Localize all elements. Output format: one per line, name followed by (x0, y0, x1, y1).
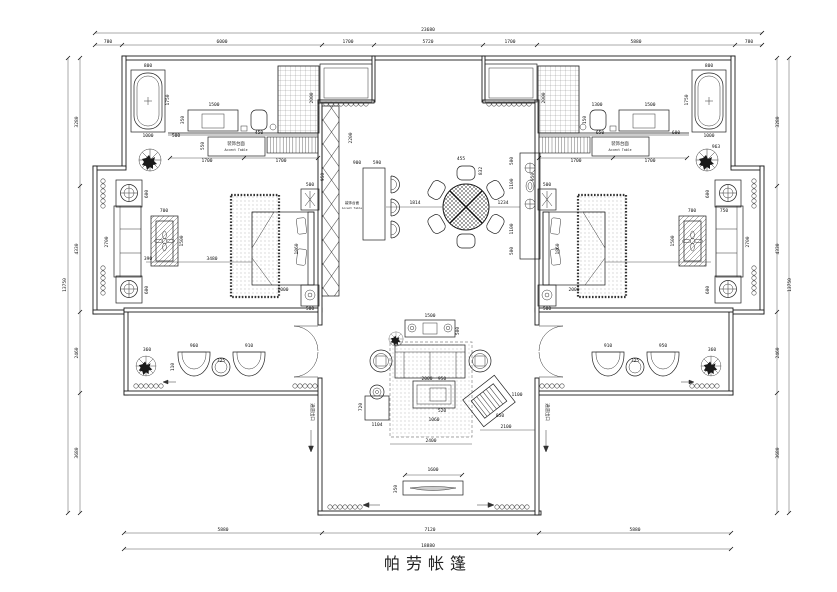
entry-windows (320, 64, 537, 102)
passage-arrow-right (544, 430, 549, 452)
bath-right (592, 352, 679, 376)
svg-text:520: 520 (438, 408, 447, 414)
bar-counter (363, 168, 400, 240)
svg-text:2000: 2000 (421, 376, 432, 382)
svg-text:1700: 1700 (342, 39, 353, 45)
svg-text:832: 832 (478, 167, 484, 176)
svg-text:750: 750 (720, 208, 729, 214)
svg-text:950: 950 (438, 376, 447, 382)
svg-text:1060: 1060 (428, 417, 439, 423)
svg-text:3280: 3280 (74, 116, 80, 127)
plant-top-left (139, 149, 161, 171)
svg-text:1500: 1500 (179, 235, 185, 246)
svg-text:23680: 23680 (421, 27, 435, 33)
accent-table-right (539, 137, 649, 156)
svg-text:2000: 2000 (568, 287, 579, 293)
svg-text:3480: 3480 (206, 256, 217, 262)
svg-text:1700: 1700 (504, 39, 515, 45)
svg-text:600: 600 (705, 286, 711, 295)
svg-text:550: 550 (200, 142, 206, 151)
svg-text:装饰台面: 装饰台面 (227, 140, 245, 147)
svg-text:1104: 1104 (371, 422, 382, 428)
svg-text:963: 963 (712, 144, 721, 150)
svg-text:850: 850 (496, 413, 505, 419)
svg-text:1500: 1500 (424, 313, 435, 319)
living-hall (365, 320, 515, 495)
svg-text:装饰台面: 装饰台面 (345, 200, 360, 205)
svg-text:650: 650 (596, 130, 605, 136)
svg-text:800: 800 (705, 63, 714, 69)
svg-text:1500: 1500 (670, 235, 676, 246)
door-right (539, 326, 563, 377)
svg-text:1000: 1000 (142, 133, 153, 139)
svg-text:150: 150 (582, 116, 588, 125)
svg-text:500: 500 (306, 182, 315, 188)
svg-text:1750: 1750 (684, 94, 690, 105)
svg-text:950: 950 (320, 173, 326, 182)
bed-right (538, 189, 626, 306)
svg-text:700: 700 (160, 208, 169, 214)
svg-text:500: 500 (543, 182, 552, 188)
floor-plan-canvas: 2368078060001700572017005880780588071205… (0, 0, 837, 592)
svg-text:1500: 1500 (208, 102, 219, 108)
svg-text:360: 360 (708, 347, 717, 353)
svg-text:1750: 1750 (165, 94, 171, 105)
svg-text:1814: 1814 (409, 200, 420, 206)
svg-text:390: 390 (144, 256, 153, 262)
svg-text:780: 780 (104, 39, 113, 45)
svg-text:500: 500 (306, 306, 315, 312)
plant-hall (389, 332, 403, 346)
svg-text:2000: 2000 (309, 92, 315, 103)
svg-text:700: 700 (688, 208, 697, 214)
accent-table-left (208, 137, 318, 156)
curtain-scallops (101, 102, 756, 509)
svg-text:通道出口: 通道出口 (309, 403, 316, 421)
svg-text:2200: 2200 (348, 132, 354, 143)
bathtub-left (131, 70, 165, 132)
svg-text:780: 780 (745, 39, 754, 45)
svg-text:325: 325 (217, 358, 226, 364)
svg-text:1600: 1600 (427, 467, 438, 473)
svg-text:350: 350 (180, 116, 186, 125)
svg-text:325: 325 (631, 358, 640, 364)
svg-text:2000: 2000 (277, 287, 288, 293)
svg-text:950: 950 (659, 343, 668, 349)
svg-text:900: 900 (353, 160, 362, 166)
svg-text:950: 950 (530, 173, 536, 182)
svg-text:1700: 1700 (570, 158, 581, 164)
bath-left (178, 352, 265, 376)
svg-text:960: 960 (190, 343, 199, 349)
svg-text:1700: 1700 (201, 158, 212, 164)
svg-text:18880: 18880 (421, 543, 435, 549)
svg-text:600: 600 (705, 190, 711, 199)
svg-text:3280: 3280 (775, 116, 781, 127)
plant-bath-left (136, 356, 156, 376)
svg-text:3680: 3680 (74, 447, 80, 458)
svg-text:1860: 1860 (555, 243, 561, 254)
svg-text:13750: 13750 (62, 278, 68, 292)
svg-text:6000: 6000 (216, 39, 227, 45)
dimension-ticks (66, 31, 791, 551)
svg-text:Accent Table: Accent Table (224, 148, 247, 152)
svg-text:450: 450 (255, 130, 264, 136)
svg-text:7120: 7120 (424, 527, 435, 533)
svg-text:4330: 4330 (74, 243, 80, 254)
svg-text:1700: 1700 (644, 158, 655, 164)
svg-text:1100: 1100 (509, 178, 515, 189)
svg-text:通道出口: 通道出口 (544, 403, 551, 421)
svg-text:600: 600 (672, 130, 681, 136)
svg-text:装饰台面: 装饰台面 (611, 140, 629, 147)
svg-text:4330: 4330 (775, 243, 781, 254)
bed-left (231, 189, 319, 306)
svg-text:500: 500 (172, 133, 181, 139)
svg-text:910: 910 (245, 343, 254, 349)
svg-text:13750: 13750 (787, 278, 793, 292)
svg-text:800: 800 (144, 63, 153, 69)
wing-right (679, 180, 743, 303)
svg-text:1300: 1300 (591, 102, 602, 108)
floor-plan-page: 2368078060001700572017005880780588071205… (0, 0, 837, 592)
svg-text:500: 500 (509, 247, 515, 256)
svg-text:2460: 2460 (74, 347, 80, 358)
svg-text:5720: 5720 (422, 39, 433, 45)
svg-text:1000: 1000 (703, 133, 714, 139)
walls (93, 56, 764, 515)
door-left (294, 326, 318, 377)
svg-text:Accent Table: Accent Table (342, 206, 363, 210)
svg-text:1100: 1100 (511, 392, 522, 398)
svg-text:2460: 2460 (775, 347, 781, 358)
svg-text:5880: 5880 (217, 527, 228, 533)
dimension-labels: 2368078060001700572017005880780588071205… (62, 27, 793, 549)
svg-text:1100: 1100 (509, 223, 515, 234)
svg-text:1860: 1860 (294, 243, 300, 254)
folding-screen (322, 106, 339, 296)
svg-text:910: 910 (604, 343, 613, 349)
svg-text:2700: 2700 (745, 236, 751, 247)
svg-text:1700: 1700 (275, 158, 286, 164)
svg-text:500: 500 (509, 157, 515, 166)
bathtub-right (692, 70, 726, 132)
svg-text:5880: 5880 (630, 39, 641, 45)
plant-bath-right (701, 356, 721, 376)
svg-text:720: 720 (358, 403, 364, 412)
svg-text:500: 500 (543, 306, 552, 312)
svg-text:1500: 1500 (644, 102, 655, 108)
plant-top-right (696, 149, 718, 171)
svg-text:455: 455 (457, 156, 466, 162)
svg-text:3680: 3680 (775, 447, 781, 458)
svg-text:2000: 2000 (541, 92, 547, 103)
svg-text:500: 500 (455, 327, 461, 336)
svg-text:2700: 2700 (104, 236, 110, 247)
svg-text:110: 110 (170, 363, 176, 372)
svg-text:2100: 2100 (500, 424, 511, 430)
svg-text:600: 600 (144, 286, 150, 295)
svg-text:360: 360 (143, 347, 152, 353)
svg-text:2400: 2400 (425, 438, 436, 444)
passage-arrow-left (309, 430, 314, 452)
svg-text:Accent Table: Accent Table (608, 148, 631, 152)
svg-text:600: 600 (144, 190, 150, 199)
svg-text:5880: 5880 (629, 527, 640, 533)
drawing-title: 帕劳帐篷 (384, 554, 472, 573)
svg-text:350: 350 (393, 485, 399, 494)
svg-text:1234: 1234 (497, 200, 508, 206)
svg-text:590: 590 (373, 160, 382, 166)
